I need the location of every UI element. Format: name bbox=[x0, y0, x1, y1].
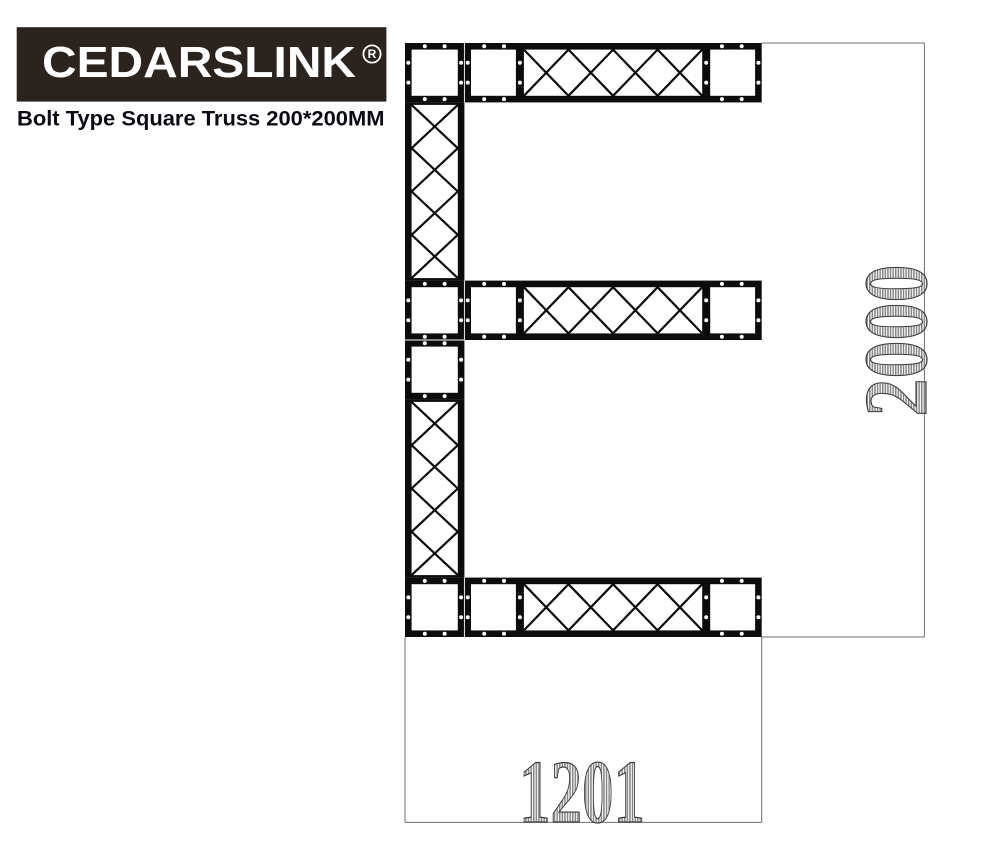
svg-text:CEDARSLINK: CEDARSLINK bbox=[42, 38, 356, 87]
svg-text:R: R bbox=[368, 47, 377, 61]
svg-text:2000: 2000 bbox=[847, 265, 946, 417]
svg-text:Bolt Type Square Truss 200*200: Bolt Type Square Truss 200*200MM bbox=[17, 106, 385, 130]
svg-text:1201: 1201 bbox=[519, 743, 645, 842]
